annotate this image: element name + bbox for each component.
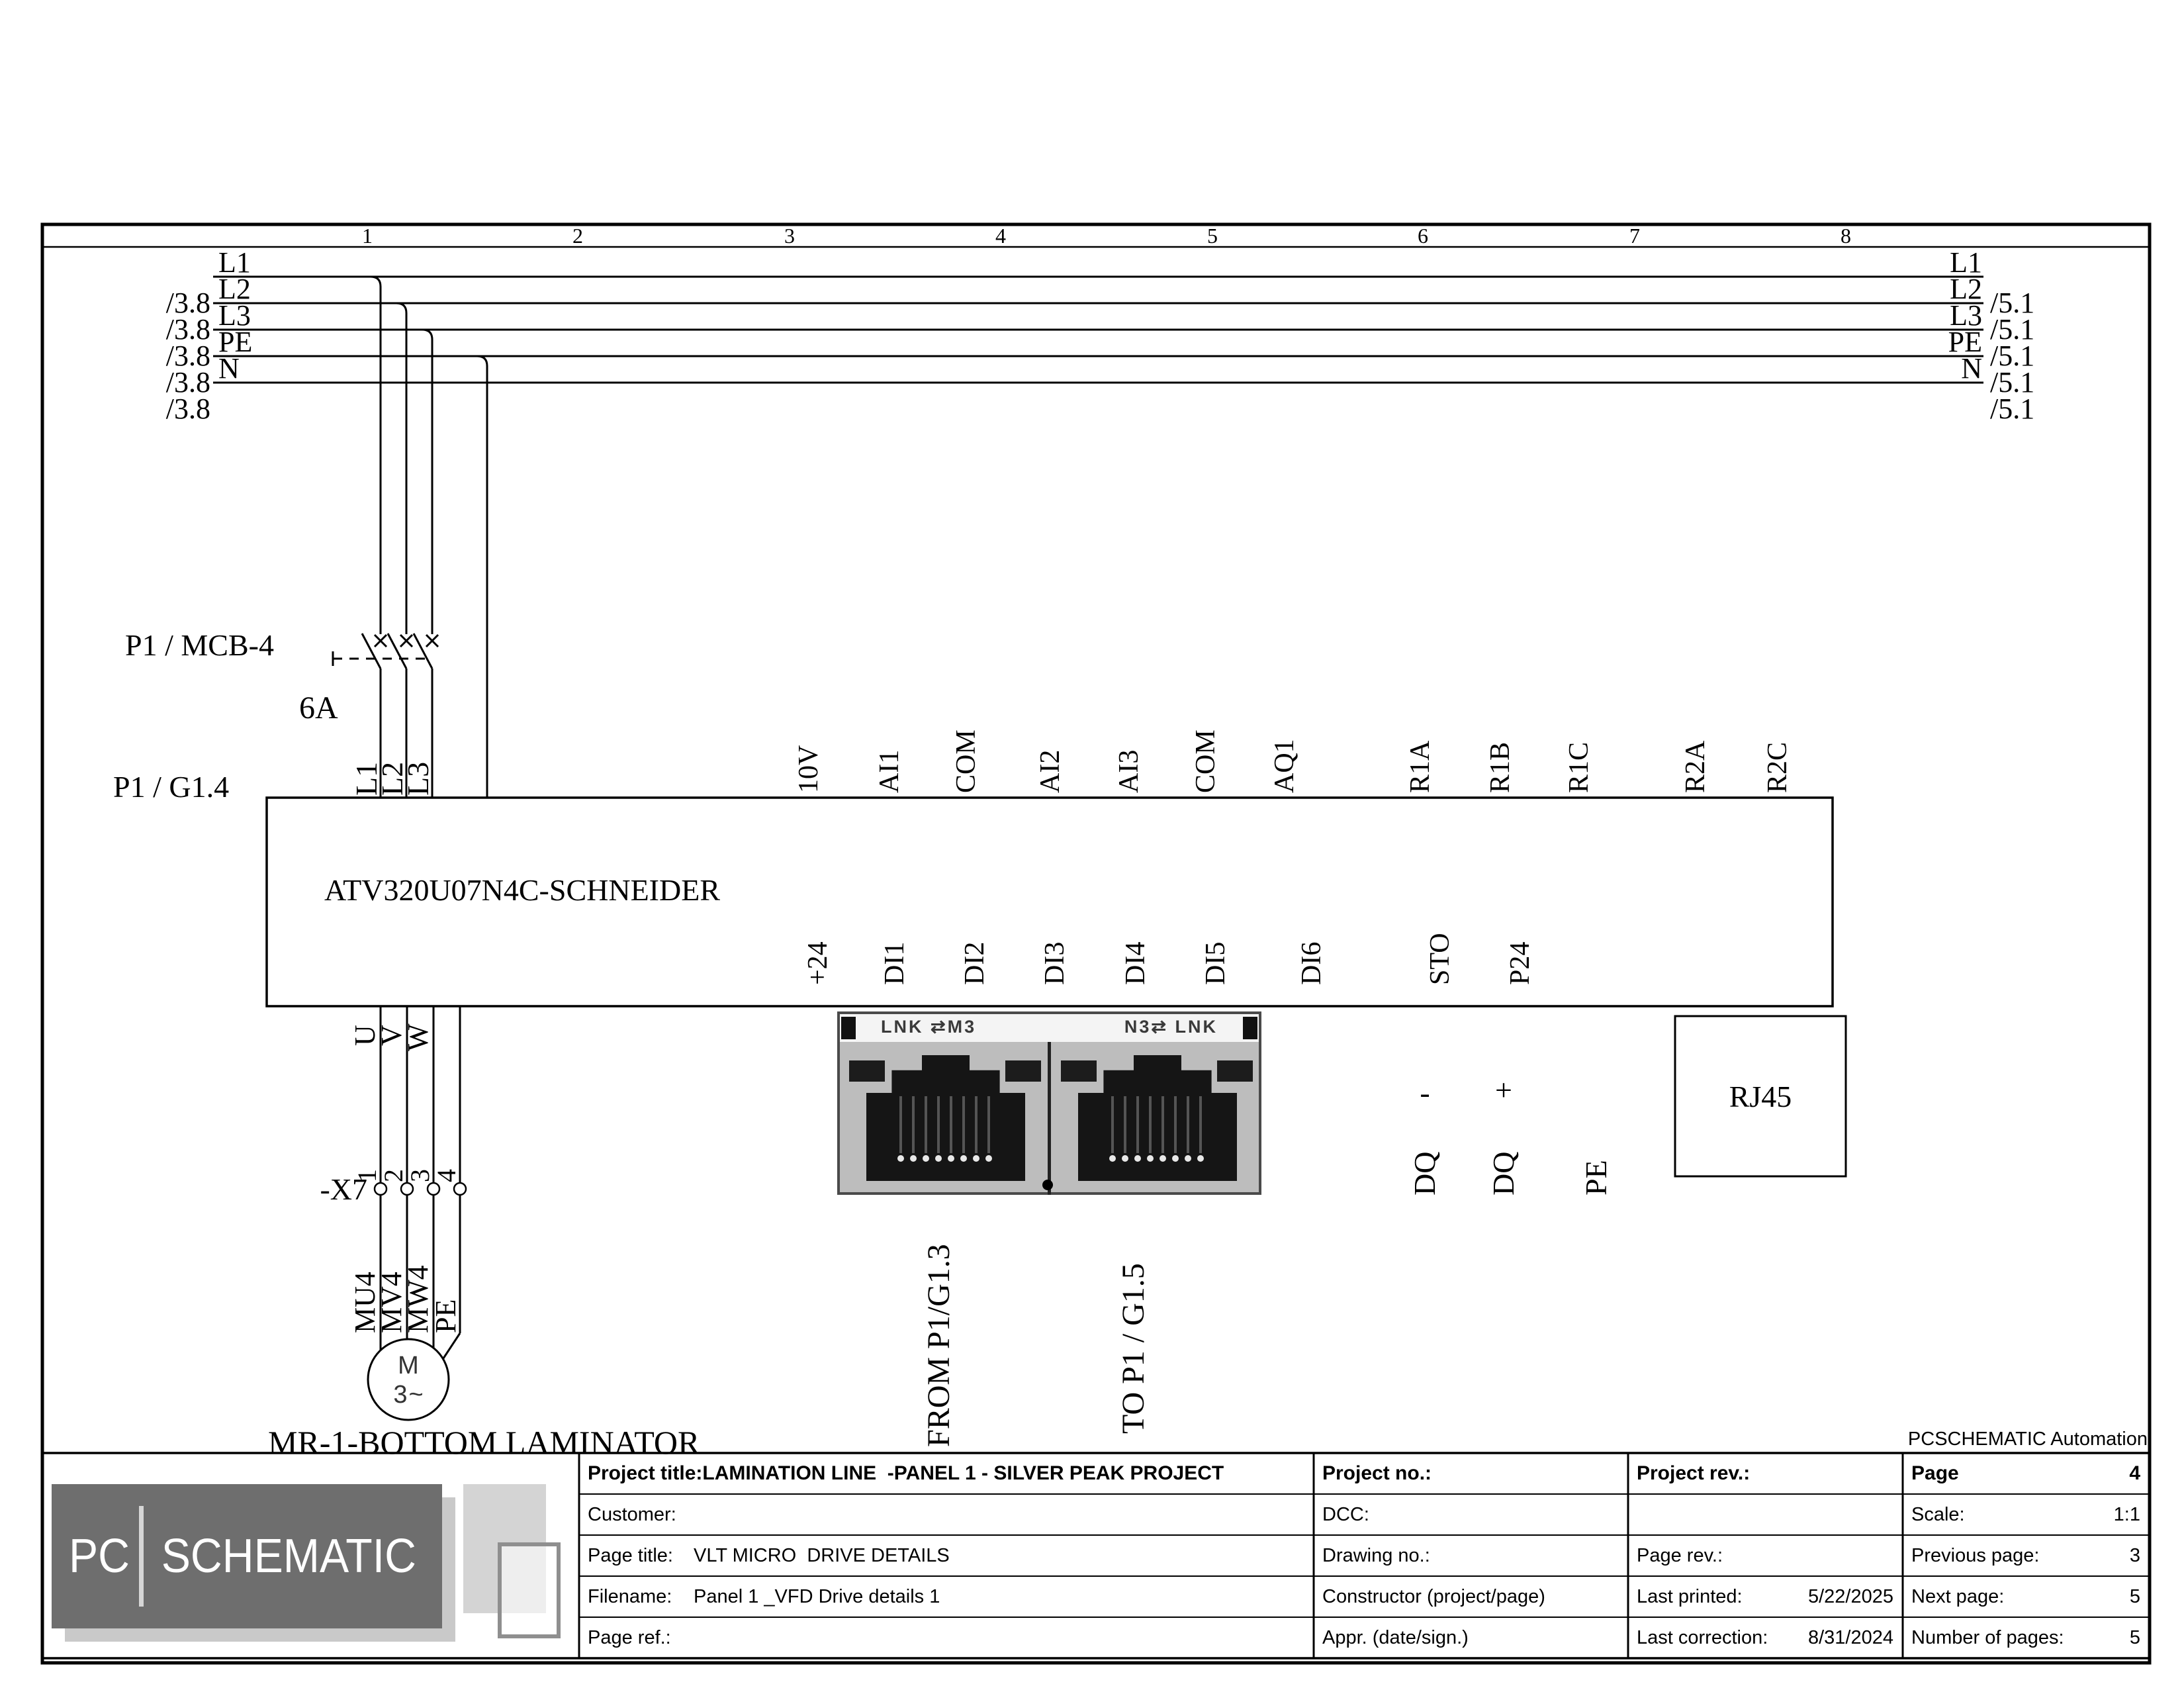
terminal-label: COM xyxy=(952,729,980,793)
terminal-label: AI3 xyxy=(1115,750,1143,793)
logo-text-pc: PC xyxy=(69,1529,130,1583)
rj45-pins-left-icon xyxy=(866,1055,1025,1181)
column-number: 6 xyxy=(1410,226,1436,245)
cell-previous-page: Previous page: 3 xyxy=(1903,1535,2150,1576)
num-pages-label: Number of pages: xyxy=(1903,1627,2064,1649)
output-label-w: W xyxy=(406,1023,430,1051)
aux-sign-plus: + xyxy=(1490,1072,1517,1107)
terminal-label: 10V xyxy=(795,745,823,793)
project-no-label: Project no.: xyxy=(1314,1462,1432,1485)
cell-page-title: Page title:VLT MICRO DRIVE DETAILS xyxy=(579,1535,1314,1576)
terminal-label: DI6 xyxy=(1298,942,1326,985)
column-number: 8 xyxy=(1833,226,1859,245)
cell-num-pages: Number of pages: 5 xyxy=(1903,1617,2150,1658)
cell-appr: Appr. (date/sign.) xyxy=(1314,1617,1628,1658)
breaker-rating: 6A xyxy=(299,690,338,726)
bus-name: N xyxy=(1876,356,1982,381)
cell-project-title: Project title:LAMINATION LINE -PANEL 1 -… xyxy=(579,1453,1314,1494)
project-title-value: LAMINATION LINE -PANEL 1 - SILVER PEAK P… xyxy=(702,1462,1224,1485)
cell-constructor: Constructor (project/page) xyxy=(1314,1576,1628,1617)
strip-corner-left xyxy=(841,1017,856,1039)
port-led-icon xyxy=(1217,1060,1253,1082)
terminal-label: +24 xyxy=(804,941,832,985)
output-label-v: V xyxy=(380,1025,404,1046)
project-title-label: Project title: xyxy=(579,1462,702,1485)
aux-terminal-label: DQ xyxy=(1490,1152,1517,1196)
port-label-right: N3⇄ LNK xyxy=(1124,1017,1218,1037)
x7-pin: 3 xyxy=(410,1169,431,1182)
schematic-sheet: 1 2 3 4 5 6 7 8 L1 /3.8 L2 /3.8 L3 /3.8 … xyxy=(0,0,2184,1688)
logo-divider-bar xyxy=(139,1506,144,1607)
note-to: TO P1 / G1.5 xyxy=(1119,1263,1148,1434)
wire-label: MW4 xyxy=(406,1265,430,1333)
page-ref-label: Page ref.: xyxy=(579,1627,671,1649)
phase-label-l3: L3 xyxy=(406,762,430,796)
photo-bottom-dot xyxy=(1042,1180,1053,1190)
next-page-label: Next page: xyxy=(1903,1586,2004,1608)
aux-terminal-label: PE xyxy=(1583,1160,1610,1196)
aux-terminal-label: DQ xyxy=(1412,1152,1438,1196)
rj45-box-label: RJ45 xyxy=(1675,1016,1846,1176)
constructor-label: Constructor (project/page) xyxy=(1314,1586,1545,1608)
terminal-label: DI2 xyxy=(961,942,989,985)
cell-project-rev: Project rev.: xyxy=(1628,1453,1903,1494)
bus-name: N xyxy=(218,356,304,381)
bus-name: L2 xyxy=(218,277,304,302)
x7-pin: 1 xyxy=(357,1169,378,1182)
column-number: 7 xyxy=(1621,226,1648,245)
strip-corner-right xyxy=(1243,1017,1257,1039)
x7-terminal-circles xyxy=(375,1183,466,1195)
scale-value: 1:1 xyxy=(2114,1504,2150,1526)
rj45-pins-right-icon xyxy=(1078,1055,1237,1181)
rj45-ports-photo: LNK ⇄M3 N3⇄ LNK xyxy=(837,1011,1261,1195)
page-title-label: Page title: xyxy=(579,1545,694,1567)
cell-page-ref: Page ref.: xyxy=(579,1617,1314,1658)
bus-ref: /3.8 xyxy=(124,392,210,426)
terminal-label: R1B xyxy=(1486,742,1514,793)
filename-label: Filename: xyxy=(579,1586,694,1608)
next-page-value: 5 xyxy=(2130,1586,2150,1608)
cell-page: Page 4 xyxy=(1903,1453,2150,1494)
project-rev-label: Project rev.: xyxy=(1628,1462,1750,1485)
terminal-label: AQ1 xyxy=(1271,739,1298,793)
column-number: 5 xyxy=(1199,226,1226,245)
x7-pin: 2 xyxy=(383,1169,404,1182)
page-number: 4 xyxy=(2129,1462,2150,1485)
wire-label: MV4 xyxy=(380,1272,404,1333)
terminal-label: R1A xyxy=(1406,741,1434,793)
column-number: 1 xyxy=(354,226,381,245)
note-from: FROM P1/G1.3 xyxy=(925,1244,954,1447)
breaker-tag: P1 / MCB-4 xyxy=(125,628,274,663)
cell-page-rev: Page rev.: xyxy=(1628,1535,1903,1576)
terminal-label: STO xyxy=(1426,933,1454,985)
bus-name: L1 xyxy=(1876,250,1982,275)
page-rev-label: Page rev.: xyxy=(1628,1545,1723,1567)
column-number: 2 xyxy=(565,226,591,245)
drawing-no-label: Drawing no.: xyxy=(1314,1545,1430,1567)
bus-name: L1 xyxy=(218,250,304,275)
terminal-label: P24 xyxy=(1506,942,1534,985)
last-correction-value: 8/31/2024 xyxy=(1808,1627,1903,1649)
motor-symbol-phase: 3~ xyxy=(383,1381,435,1409)
terminal-label: COM xyxy=(1192,729,1220,793)
last-printed-value: 5/22/2025 xyxy=(1808,1586,1903,1608)
power-bus-lines xyxy=(213,277,1983,383)
bus-ref: /5.1 xyxy=(1990,392,2089,426)
port-label-left: LNK ⇄M3 xyxy=(881,1017,976,1037)
bus-name: PE xyxy=(1876,330,1982,355)
terminal-label: AI2 xyxy=(1036,750,1064,793)
terminal-label: DI5 xyxy=(1202,942,1230,985)
wire-label: MU4 xyxy=(353,1272,377,1333)
port-led-icon xyxy=(1061,1060,1097,1082)
bus-drops xyxy=(371,277,487,798)
num-pages-value: 5 xyxy=(2130,1627,2150,1649)
port-led-icon xyxy=(849,1060,885,1082)
cell-project-no: Project no.: xyxy=(1314,1453,1628,1494)
scale-label: Scale: xyxy=(1903,1504,1965,1526)
aux-sign-minus: - xyxy=(1412,1075,1438,1110)
feed-reference: P1 / G1.4 xyxy=(113,769,229,804)
port-led-icon xyxy=(1005,1060,1041,1082)
page-title-value: VLT MICRO DRIVE DETAILS xyxy=(694,1545,950,1567)
previous-page-label: Previous page: xyxy=(1903,1545,2039,1567)
cell-next-page: Next page: 5 xyxy=(1903,1576,2150,1617)
logo-sheet-outline-icon xyxy=(498,1542,561,1638)
motor-symbol-m: M xyxy=(395,1352,422,1380)
bus-name: L3 xyxy=(218,303,304,328)
cell-filename: Filename:Panel 1 _VFD Drive details 1 xyxy=(579,1576,1314,1617)
cell-scale: Scale: 1:1 xyxy=(1903,1494,2150,1535)
cell-last-printed: Last printed: 5/22/2025 xyxy=(1628,1576,1903,1617)
customer-label: Customer: xyxy=(579,1504,676,1526)
logo-plate: PC SCHEMATIC xyxy=(52,1484,442,1628)
bus-name: L3 xyxy=(1876,303,1982,328)
bus-name: L2 xyxy=(1876,277,1982,302)
x7-pin: 4 xyxy=(436,1169,457,1182)
cell-drawing-no: Drawing no.: xyxy=(1314,1535,1628,1576)
logo-text-schematic: SCHEMATIC xyxy=(161,1529,416,1583)
terminal-label: AI1 xyxy=(876,750,903,793)
output-label-u: U xyxy=(353,1025,377,1046)
appr-label: Appr. (date/sign.) xyxy=(1314,1627,1469,1649)
filename-value: Panel 1 _VFD Drive details 1 xyxy=(694,1586,940,1608)
terminal-label: R1C xyxy=(1565,742,1593,793)
column-number: 4 xyxy=(987,226,1014,245)
terminal-label: DI3 xyxy=(1041,942,1069,985)
last-printed-label: Last printed: xyxy=(1628,1586,1743,1608)
wire-label: PE xyxy=(434,1299,458,1333)
cell-customer: Customer: xyxy=(579,1494,1314,1535)
last-correction-label: Last correction: xyxy=(1628,1627,1768,1649)
terminal-label: DI1 xyxy=(881,942,909,985)
dcc-label: DCC: xyxy=(1314,1504,1369,1526)
port-divider xyxy=(1048,1042,1051,1195)
terminal-label: R2A xyxy=(1682,741,1709,793)
previous-page-value: 3 xyxy=(2130,1545,2150,1567)
bus-name: PE xyxy=(218,330,304,355)
column-number: 3 xyxy=(776,226,803,245)
terminal-label: R2C xyxy=(1764,742,1792,793)
watermark: PCSCHEMATIC Automation xyxy=(1787,1429,2148,1450)
page-label: Page xyxy=(1903,1462,1959,1485)
vfd-model: ATV320U07N4C-SCHNEIDER xyxy=(324,872,720,908)
cell-last-correction: Last correction: 8/31/2024 xyxy=(1628,1617,1903,1658)
cell-dcc: DCC: xyxy=(1314,1494,1628,1535)
terminal-label: DI4 xyxy=(1122,942,1150,985)
